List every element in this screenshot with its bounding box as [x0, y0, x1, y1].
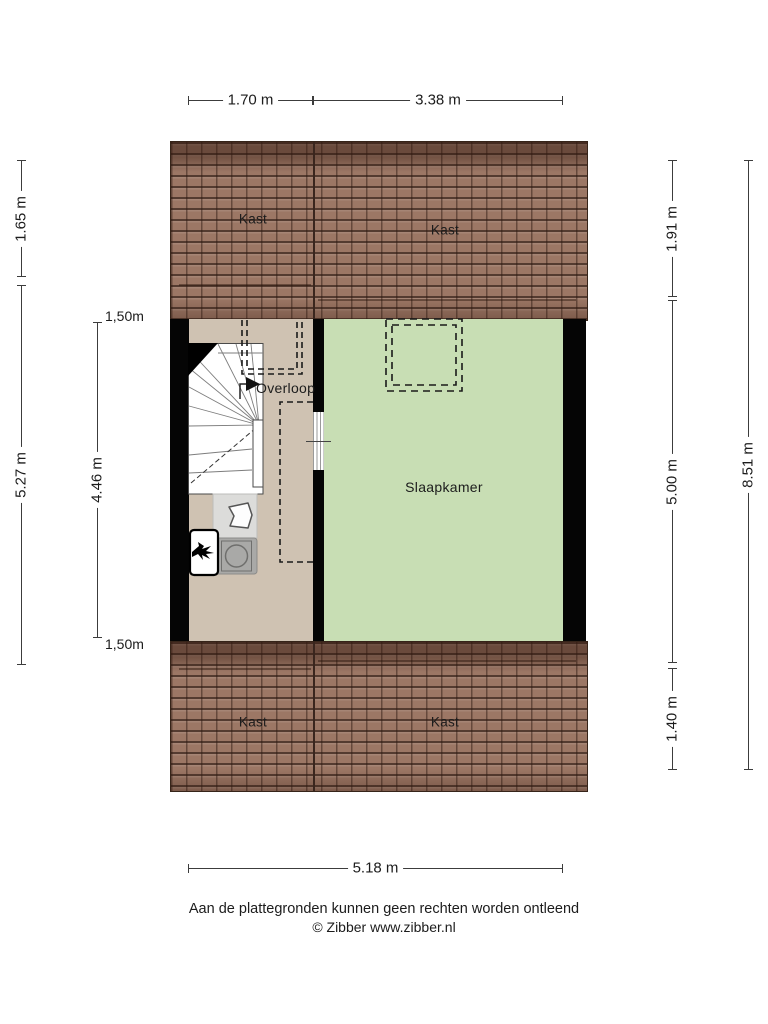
dim-value: 1.40 m: [664, 691, 681, 747]
knee-wall-line: [318, 299, 576, 301]
dimension-left-roof: 1.65 m: [12, 160, 30, 277]
dim-value: 4.46 m: [89, 452, 106, 508]
dimension-left-inner-floor: 4.46 m: [88, 322, 106, 638]
room-label-kast-top-left: Kast: [239, 212, 267, 227]
dim-value: 8.51 m: [740, 437, 757, 493]
overloop-floor: [189, 319, 313, 641]
door-center-tick: [306, 441, 331, 442]
dim-value: 3.38 m: [410, 92, 466, 109]
dim-value: 5.18 m: [348, 860, 404, 877]
dim-tick: [668, 662, 677, 663]
dim-tick: [668, 160, 677, 161]
dim-tick: [668, 668, 677, 669]
dim-tick: [562, 96, 563, 105]
copyright-text: © Zibber www.zibber.nl: [0, 919, 768, 935]
roof-seam-top: [313, 142, 315, 320]
dim-tick: [668, 769, 677, 770]
dimension-top-right: 3.38 m: [313, 91, 563, 109]
room-label-overloop: Overloop: [256, 380, 315, 396]
room-label-slaapkamer: Slaapkamer: [405, 479, 483, 495]
dim-tick: [17, 664, 26, 665]
dim-tick: [188, 96, 189, 105]
dimension-right-floor: 5.00 m: [663, 300, 681, 663]
floorplan-page: Kast Kast Kast Kast Overloop Slaapkamer …: [0, 0, 768, 1024]
wall-between-overloop-slaapkamer: [313, 319, 324, 641]
wall-right: [563, 319, 586, 641]
dim-value: 5.27 m: [13, 447, 30, 503]
dim-value: 1.91 m: [664, 201, 681, 257]
knee-wall-line: [179, 668, 311, 670]
dimension-right-total: 8.51 m: [739, 160, 757, 770]
roof-seam-bottom: [313, 642, 315, 791]
dimension-bottom: 5.18 m: [188, 859, 563, 877]
dim-tick: [744, 769, 753, 770]
dimension-top-left: 1.70 m: [188, 91, 313, 109]
dim-value: 1.65 m: [13, 191, 30, 247]
dim-tick: [17, 160, 26, 161]
dimension-right-roof: 1.91 m: [663, 160, 681, 297]
headroom-label-bottom: 1,50m: [105, 636, 144, 652]
dim-tick: [93, 322, 102, 323]
room-label-kast-bottom-left: Kast: [239, 715, 267, 730]
dim-tick: [188, 864, 189, 873]
knee-wall-line: [318, 660, 576, 662]
knee-wall-line: [179, 284, 311, 286]
dim-tick: [668, 296, 677, 297]
disclaimer-text: Aan de plattegronden kunnen geen rechten…: [0, 901, 768, 917]
dimension-left-floor: 5.27 m: [12, 285, 30, 665]
dim-value: 1.70 m: [223, 92, 279, 109]
dim-tick: [17, 285, 26, 286]
room-label-kast-bottom-right: Kast: [431, 715, 459, 730]
dim-tick: [744, 160, 753, 161]
wall-left: [170, 319, 189, 641]
room-label-kast-top-right: Kast: [431, 223, 459, 238]
dim-tick: [562, 864, 563, 873]
roof-area-bottom: [170, 641, 588, 792]
dimension-right-roof-bottom: 1.40 m: [663, 668, 681, 770]
dim-tick: [17, 276, 26, 277]
dim-value: 5.00 m: [664, 454, 681, 510]
dim-tick: [93, 637, 102, 638]
dim-tick: [668, 300, 677, 301]
roof-area-top: [170, 141, 588, 321]
headroom-label-top: 1,50m: [105, 308, 144, 324]
dim-tick: [313, 96, 314, 105]
